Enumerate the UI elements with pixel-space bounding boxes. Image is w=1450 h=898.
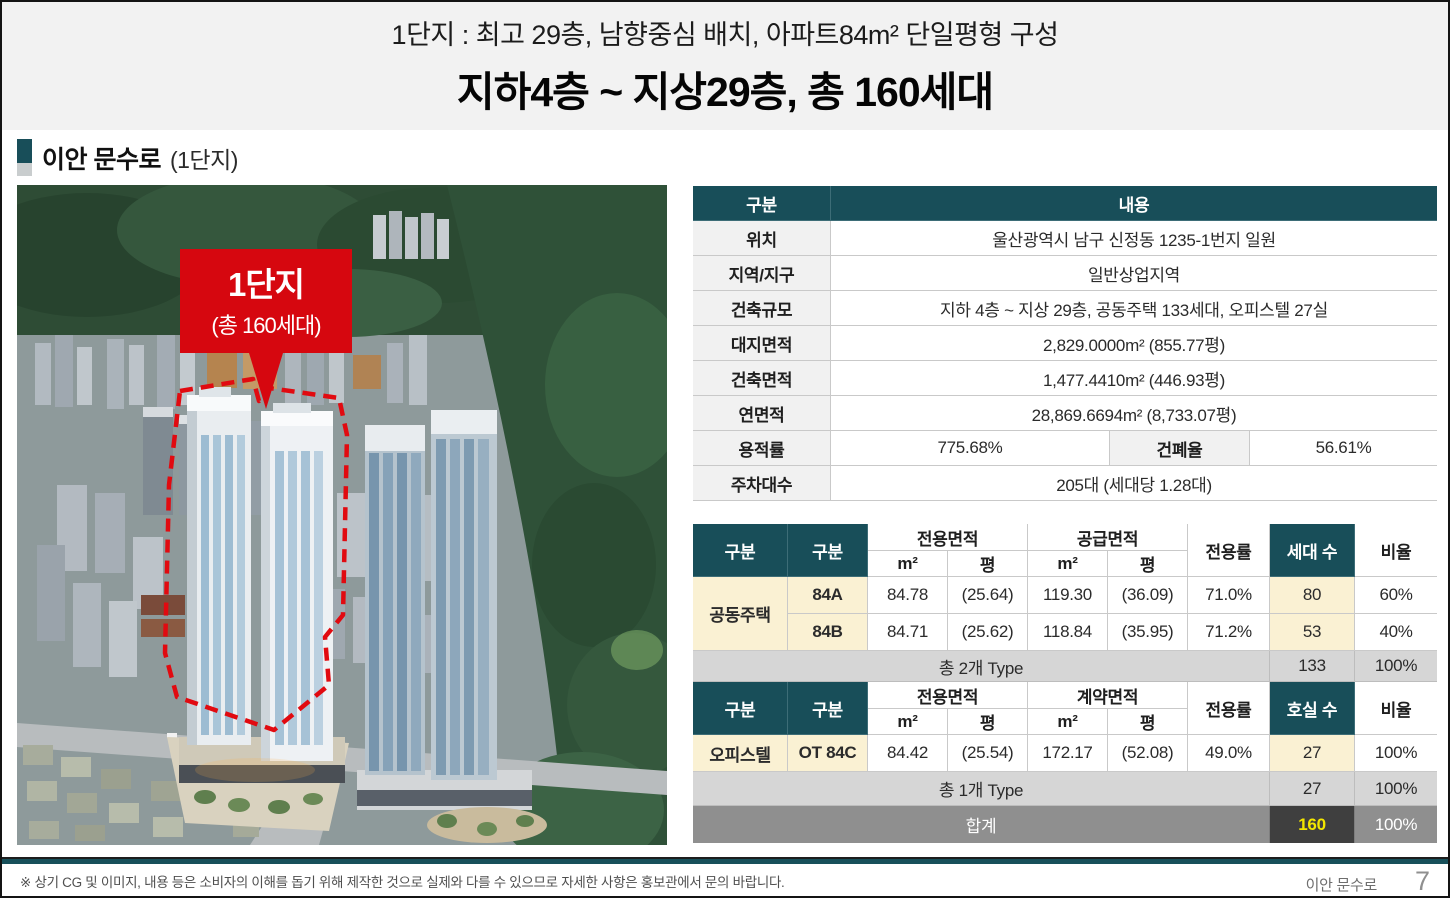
ot-rate: 49.0% (1188, 735, 1270, 772)
apt-header-gubun2: 구분 (788, 524, 868, 577)
site-callout-pointer-icon (249, 353, 283, 409)
ot-subtotal-count: 27 (1270, 772, 1355, 806)
ot-subtotal-ratio: 100% (1355, 772, 1437, 806)
apt-ratio: 40% (1355, 614, 1437, 651)
apt-header-ratio: 비율 (1355, 524, 1437, 577)
apt-ex-py: (25.62) (948, 614, 1028, 651)
apt-ratio: 60% (1355, 577, 1437, 614)
site-callout: 1단지 (총 160세대) (180, 249, 352, 353)
ot-header-rate: 전용률 (1188, 682, 1270, 735)
footer-divider (0, 857, 1450, 864)
apt-ex-py: (25.64) (948, 577, 1028, 614)
apt-header-rate: 전용률 (1188, 524, 1270, 577)
header-title: 지하4층 ~ 지상29층, 총 160세대 (457, 58, 993, 118)
ot-header-count: 호실 수 (1270, 682, 1355, 735)
info-row-label: 건축면적 (693, 361, 831, 396)
bcr-value: 56.61% (1250, 431, 1437, 466)
slide: 1단지 : 최고 29층, 남향중심 배치, 아파트84m² 단일평형 구성 지… (0, 0, 1450, 898)
footer: ※ 상기 CG 및 이미지, 내용 등은 소비자의 이해를 돕기 위해 제작한 … (0, 866, 1450, 896)
apt-subtotal-ratio: 100% (1355, 651, 1437, 682)
section-title-row: 이안 문수로 (1단지) (17, 139, 238, 176)
apt-header-gubun1: 구분 (693, 524, 788, 577)
parking-label: 주차대수 (693, 466, 831, 501)
apt-header-py: 평 (1108, 551, 1188, 577)
header-subtitle: 1단지 : 최고 29층, 남향중심 배치, 아파트84m² 단일평형 구성 (392, 13, 1059, 52)
apt-ex-m2: 84.71 (868, 614, 948, 651)
grand-total-ratio: 100% (1355, 806, 1437, 843)
info-row-value: 울산광역시 남구 신정동 1235-1번지 일원 (831, 221, 1437, 256)
site-callout-title: 1단지 (184, 258, 348, 306)
ot-ct-m2: 172.17 (1028, 735, 1108, 772)
ot-ex-m2: 84.42 (868, 735, 948, 772)
aerial-photo: 1단지 (총 160세대) (17, 185, 667, 845)
section-title: 이안 문수로 (42, 140, 161, 176)
grand-total-count: 160 (1270, 806, 1355, 843)
ot-header-py: 평 (948, 709, 1028, 735)
apt-category: 공동주택 (693, 577, 788, 651)
info-row-value: 일반상업지역 (831, 256, 1437, 291)
info-row-value: 2,829.0000m² (855.77평) (831, 326, 1437, 361)
info-row-value: 28,869.6694m² (8,733.07평) (831, 396, 1437, 431)
ot-header-contract-area: 계약면적 (1028, 682, 1188, 709)
project-info-table: 구분 내용 위치 울산광역시 남구 신정동 1235-1번지 일원 지역/지구 … (693, 186, 1437, 501)
apt-count: 53 (1270, 614, 1355, 651)
ot-count: 27 (1270, 735, 1355, 772)
apt-header-py: 평 (948, 551, 1028, 577)
apt-sp-py: (36.09) (1108, 577, 1188, 614)
apt-subtotal-count: 133 (1270, 651, 1355, 682)
apt-rate: 71.0% (1188, 577, 1270, 614)
parking-value: 205대 (세대당 1.28대) (831, 466, 1437, 501)
ot-header-gubun2: 구분 (788, 682, 868, 735)
apt-rate: 71.2% (1188, 614, 1270, 651)
ot-header-gubun1: 구분 (693, 682, 788, 735)
ot-header-ratio: 비율 (1355, 682, 1437, 735)
ot-header-py: 평 (1108, 709, 1188, 735)
info-row-label: 대지면적 (693, 326, 831, 361)
info-row-value: 1,477.4410m² (446.93평) (831, 361, 1437, 396)
officetel-table: 구분 구분 전용면적 계약면적 전용률 호실 수 비율 m² 평 m² 평 오피… (693, 682, 1437, 843)
far-label: 용적률 (693, 431, 831, 466)
apartment-table: 구분 구분 전용면적 공급면적 전용률 세대 수 비율 m² 평 m² 평 공동… (693, 524, 1437, 682)
apt-ex-m2: 84.78 (868, 577, 948, 614)
apt-header-m2: m² (1028, 551, 1108, 577)
info-row-label: 지역/지구 (693, 256, 831, 291)
ot-header-m2: m² (868, 709, 948, 735)
apt-type: 84A (788, 577, 868, 614)
info-row-label: 연면적 (693, 396, 831, 431)
apt-sp-m2: 118.84 (1028, 614, 1108, 651)
apt-sp-py: (35.95) (1108, 614, 1188, 651)
ot-type: OT 84C (788, 735, 868, 772)
footer-disclaimer: ※ 상기 CG 및 이미지, 내용 등은 소비자의 이해를 돕기 위해 제작한 … (20, 871, 785, 891)
ot-subtotal-label: 총 1개 Type (693, 772, 1270, 806)
site-callout-subtitle: (총 160세대) (184, 308, 348, 340)
section-bullet-icon (17, 139, 32, 176)
apt-count: 80 (1270, 577, 1355, 614)
header-band: 1단지 : 최고 29층, 남향중심 배치, 아파트84m² 단일평형 구성 지… (0, 0, 1450, 130)
footer-brand: 이안 문수로 (1306, 874, 1377, 895)
info-header-gubun: 구분 (693, 186, 831, 221)
bcr-label: 건폐율 (1110, 431, 1250, 466)
apt-header-supply-area: 공급면적 (1028, 524, 1188, 551)
apt-sp-m2: 119.30 (1028, 577, 1108, 614)
info-row-value: 지하 4층 ~ 지상 29층, 공동주택 133세대, 오피스텔 27실 (831, 291, 1437, 326)
ot-ratio: 100% (1355, 735, 1437, 772)
apt-header-exclusive-area: 전용면적 (868, 524, 1028, 551)
ot-ct-py: (52.08) (1108, 735, 1188, 772)
info-row-label: 건축규모 (693, 291, 831, 326)
ot-header-m2: m² (1028, 709, 1108, 735)
info-row-label: 위치 (693, 221, 831, 256)
apt-type: 84B (788, 614, 868, 651)
far-value: 775.68% (831, 431, 1110, 466)
ot-ex-py: (25.54) (948, 735, 1028, 772)
footer-page-number: 7 (1415, 866, 1430, 897)
section-suffix: (1단지) (170, 141, 238, 175)
apt-header-count: 세대 수 (1270, 524, 1355, 577)
ot-category: 오피스텔 (693, 735, 788, 772)
info-header-content: 내용 (831, 186, 1437, 221)
apt-header-m2: m² (868, 551, 948, 577)
ot-header-exclusive-area: 전용면적 (868, 682, 1028, 709)
apt-subtotal-label: 총 2개 Type (693, 651, 1270, 682)
grand-total-label: 합계 (693, 806, 1270, 843)
